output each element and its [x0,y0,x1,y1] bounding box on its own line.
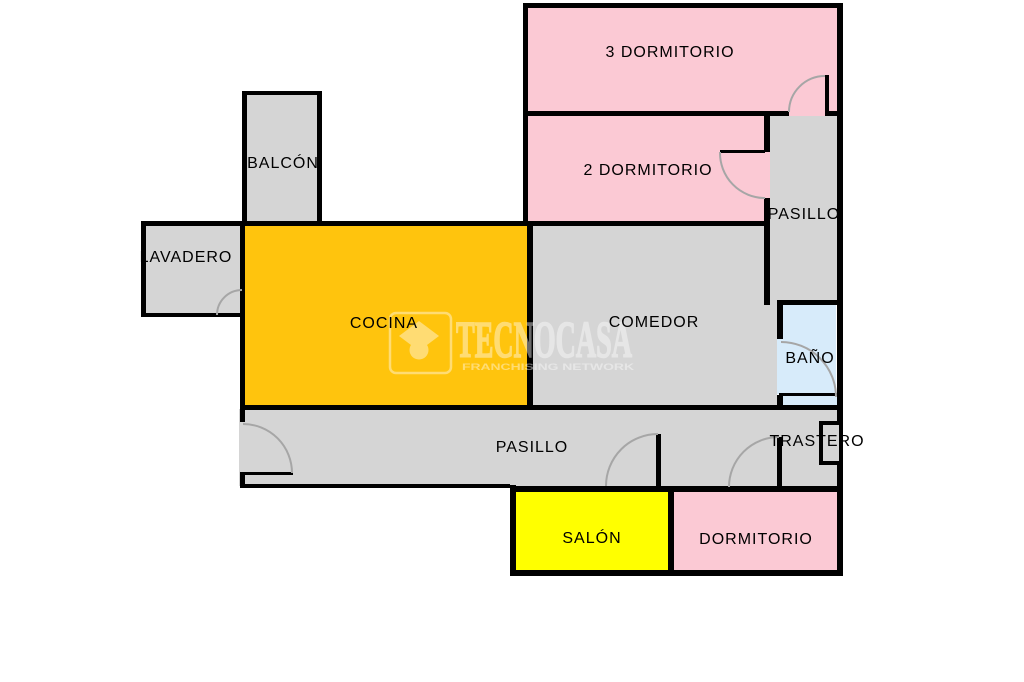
svg-text:PASILLO: PASILLO [496,439,569,456]
svg-text:BALCÓN: BALCÓN [247,153,319,172]
svg-text:TRASTERO: TRASTERO [769,433,864,450]
svg-text:SALÓN: SALÓN [562,528,621,547]
svg-text:PASILLO: PASILLO [768,206,841,223]
svg-text:COMEDOR: COMEDOR [609,314,700,331]
svg-text:TECNOCASA: TECNOCASA [456,312,632,369]
svg-text:FRANCHISING NETWORK: FRANCHISING NETWORK [462,362,634,373]
svg-text:3 DORMITORIO: 3 DORMITORIO [605,44,734,61]
svg-text:DORMITORIO: DORMITORIO [699,531,813,548]
svg-text:COCINA: COCINA [350,315,418,332]
svg-text:BAÑO: BAÑO [785,347,834,367]
svg-text:2 DORMITORIO: 2 DORMITORIO [583,162,712,179]
svg-text:LAVADERO: LAVADERO [140,249,233,266]
